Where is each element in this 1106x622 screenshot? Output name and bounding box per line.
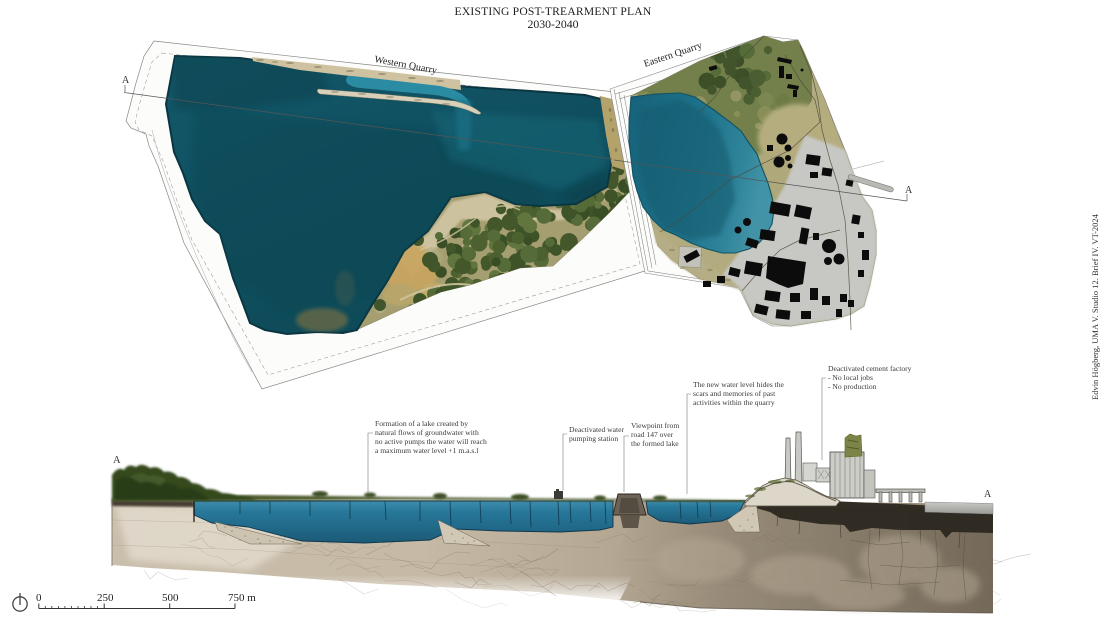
svg-text:500: 500	[162, 592, 179, 604]
svg-text:road 147 over: road 147 over	[631, 430, 674, 439]
svg-text:Deactivated water: Deactivated water	[569, 425, 624, 434]
svg-text:Viewpoint from: Viewpoint from	[631, 421, 679, 430]
svg-text:0: 0	[36, 592, 42, 604]
svg-text:- No local jobs: - No local jobs	[828, 373, 873, 382]
svg-text:natural flows of groundwater w: natural flows of groundwater with	[375, 428, 479, 437]
svg-text:- No production: - No production	[828, 382, 877, 391]
svg-text:no active pumps the water will: no active pumps the water will reach	[375, 437, 487, 446]
svg-text:activities within the quarry: activities within the quarry	[693, 398, 775, 407]
svg-text:the formed lake: the formed lake	[631, 439, 679, 448]
svg-text:The new water level hides the: The new water level hides the	[693, 380, 785, 389]
svg-text:A: A	[984, 489, 992, 500]
svg-text:A: A	[122, 75, 130, 86]
svg-text:Deactivated cement factory: Deactivated cement factory	[828, 364, 912, 373]
svg-text:A: A	[905, 185, 913, 196]
svg-text:Edvin Högberg, UMA V. Studio 1: Edvin Högberg, UMA V. Studio 12. Brief I…	[1090, 213, 1100, 400]
svg-text:250: 250	[97, 592, 114, 604]
svg-text:2030-2040: 2030-2040	[527, 17, 578, 31]
svg-text:scars and memories of past: scars and memories of past	[693, 389, 776, 398]
svg-text:750 m: 750 m	[228, 592, 256, 604]
svg-text:Formation of a lake created by: Formation of a lake created by	[375, 419, 468, 428]
svg-text:pumping station: pumping station	[569, 434, 618, 443]
svg-text:a maximum water level +1 m.a.s: a maximum water level +1 m.a.s.l	[375, 446, 478, 455]
svg-text:A: A	[113, 455, 121, 466]
